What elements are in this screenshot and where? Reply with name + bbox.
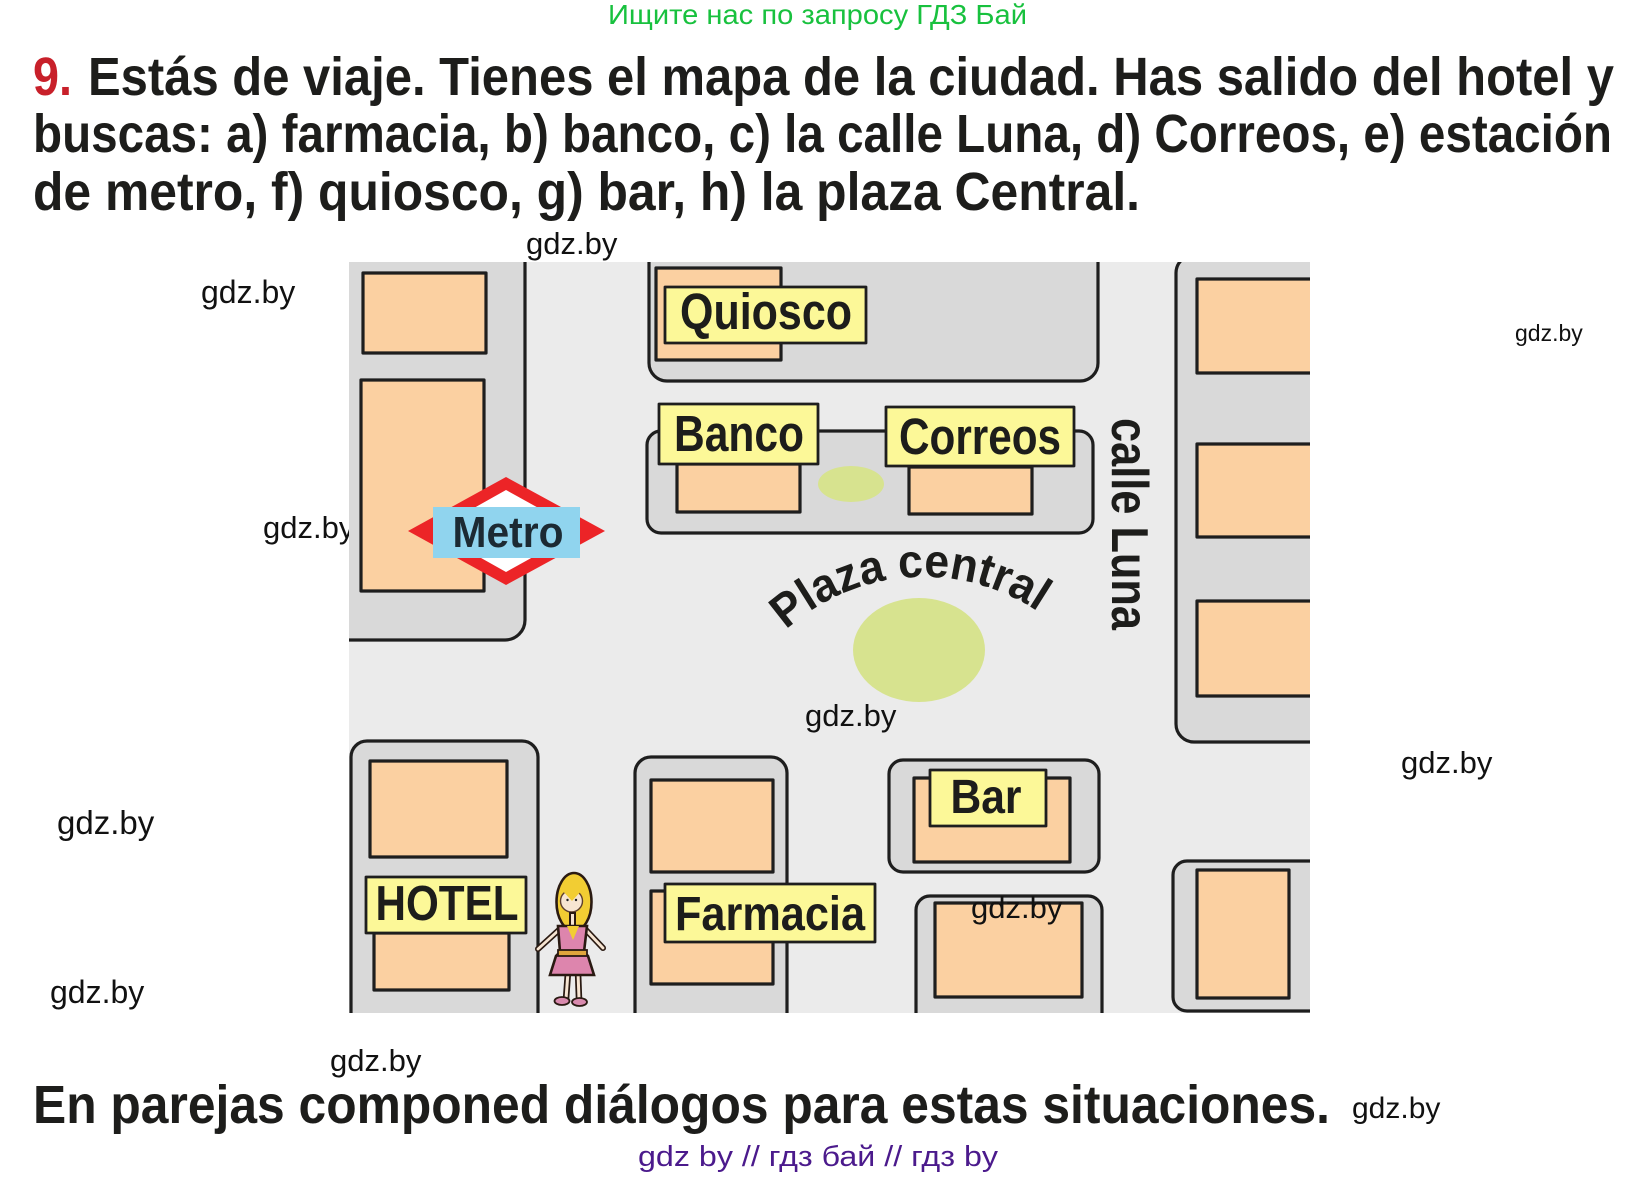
svg-text:gdz.by: gdz.by bbox=[330, 1043, 422, 1078]
svg-text:Bar: Bar bbox=[951, 771, 1022, 824]
svg-text:de metro, f) quiosco, g) bar,: de metro, f) quiosco, g) bar, h) la plaz… bbox=[33, 162, 1140, 222]
svg-text:gdz.by: gdz.by bbox=[1401, 745, 1493, 780]
svg-text:HOTEL: HOTEL bbox=[376, 877, 519, 931]
svg-text:Farmacia: Farmacia bbox=[675, 888, 865, 941]
svg-text:calle Luna: calle Luna bbox=[1100, 418, 1158, 631]
svg-text:En parejas componed diálogos p: En parejas componed diálogos para estas … bbox=[33, 1075, 1330, 1135]
svg-text:Correos: Correos bbox=[899, 408, 1061, 465]
svg-text:Estás de viaje. Tienes el mapa: Estás de viaje. Tienes el mapa de la ciu… bbox=[88, 47, 1614, 107]
svg-text:gdz.by: gdz.by bbox=[805, 698, 897, 733]
svg-text:Metro: Metro bbox=[453, 508, 564, 557]
svg-text:gdz by // гдз бай // гдз b: gdz by // гдз бай // гдз by bbox=[638, 1141, 999, 1173]
svg-text:Banco: Banco bbox=[674, 405, 804, 462]
svg-text:gdz.by: gdz.by bbox=[1515, 320, 1583, 346]
svg-text:Quiosco: Quiosco bbox=[680, 283, 852, 340]
svg-text:gdz.by: gdz.by bbox=[971, 890, 1063, 925]
svg-text:gdz.by: gdz.by bbox=[526, 226, 618, 261]
svg-text:gdz.by: gdz.by bbox=[57, 804, 155, 841]
svg-text:gdz.by: gdz.by bbox=[263, 510, 355, 545]
svg-text:gdz.by: gdz.by bbox=[1352, 1092, 1440, 1125]
svg-text:9.: 9. bbox=[33, 47, 72, 107]
svg-text:gdz.by: gdz.by bbox=[50, 974, 144, 1010]
svg-text:buscas: a) farmacia, b) banco,: buscas: a) farmacia, b) banco, c) la cal… bbox=[33, 104, 1612, 164]
svg-text:Ищите нас по запросу ГДЗ Бай: Ищите нас по запросу ГДЗ Бай bbox=[608, 0, 1027, 30]
svg-text:gdz.by: gdz.by bbox=[201, 274, 295, 310]
